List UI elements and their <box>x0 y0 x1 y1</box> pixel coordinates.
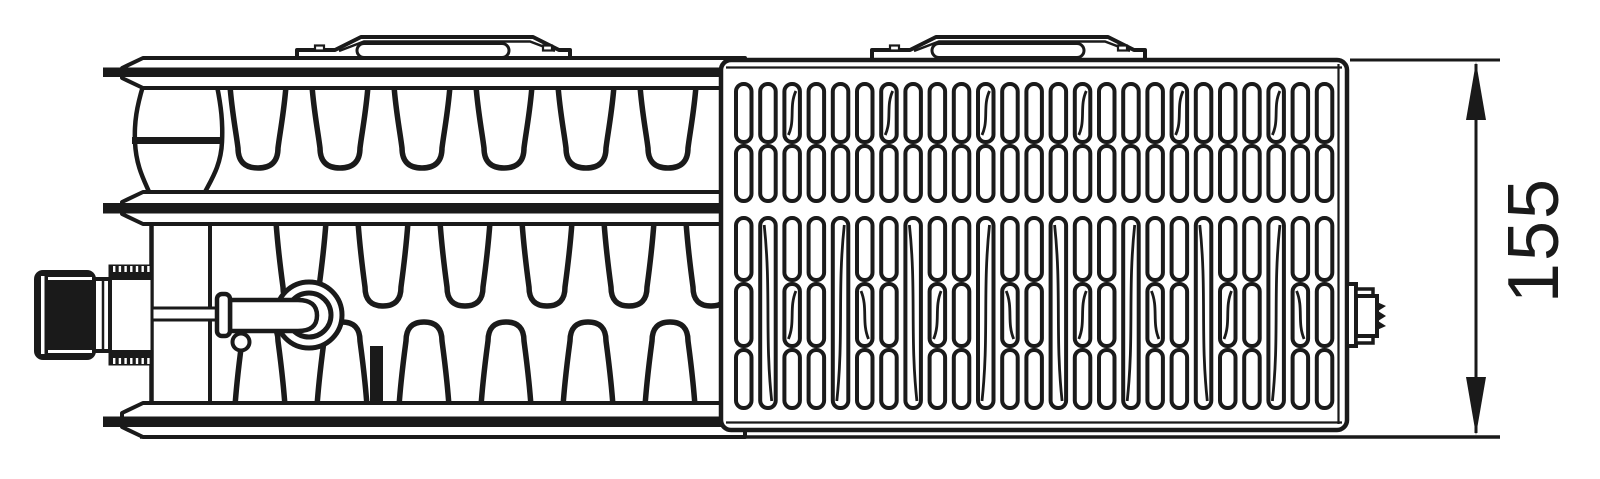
grille-slot <box>736 350 752 408</box>
grille-slot <box>1220 146 1236 201</box>
convector-fin <box>640 86 696 168</box>
grille-slot <box>954 146 970 201</box>
valve-insert-pipe <box>230 300 317 331</box>
grille-slot <box>833 84 849 142</box>
knob-edge-line <box>48 277 92 280</box>
grille-slot <box>736 146 752 201</box>
grille-slot <box>784 146 800 201</box>
grille-slot <box>881 350 897 408</box>
grille-slot <box>1123 84 1139 142</box>
water-channel-rail <box>103 192 745 224</box>
convector-fin <box>394 86 450 168</box>
grille-slot <box>881 284 897 346</box>
grille-slot <box>1244 284 1260 346</box>
vent-hole <box>233 334 250 351</box>
grille-slot <box>954 218 970 280</box>
grille-slot <box>1196 146 1212 201</box>
grille-slot <box>1220 218 1236 280</box>
convector-fin <box>399 322 449 406</box>
valve-flange <box>217 294 230 336</box>
grille-slot <box>881 218 897 280</box>
rail-center-line <box>103 203 745 214</box>
convector-fin <box>481 322 531 406</box>
grille-slot <box>1147 350 1163 408</box>
grille-slot <box>1075 350 1091 408</box>
convector-fin <box>522 222 572 306</box>
grille-slot <box>1293 146 1309 201</box>
thread-tooth <box>124 358 126 364</box>
grille-slot <box>809 350 825 408</box>
plug-body <box>1356 296 1377 336</box>
union-nut-body <box>110 266 152 364</box>
tab-grip <box>357 44 509 58</box>
grille-slot <box>1317 284 1333 346</box>
tab-foot <box>543 46 552 51</box>
knob-edge-line <box>48 350 92 353</box>
grille-slot <box>978 146 994 201</box>
grille-slot <box>1002 218 1018 280</box>
grille-slot <box>1026 284 1042 346</box>
grille-slot <box>905 146 921 201</box>
grille-slot <box>784 350 800 408</box>
knob-highlight <box>41 276 45 354</box>
convector-fin <box>645 322 695 406</box>
grille-slot <box>1026 218 1042 280</box>
grille-slot <box>760 84 776 142</box>
grille-slot <box>1220 84 1236 142</box>
thread-tooth <box>119 266 121 272</box>
grille-slot <box>954 284 970 346</box>
grille-slot <box>1075 218 1091 280</box>
convector-fin <box>558 86 614 168</box>
arrowhead-down <box>1466 377 1486 435</box>
water-channel-rail <box>103 58 745 88</box>
grille-slot <box>809 146 825 201</box>
grille-slot <box>1099 350 1115 408</box>
grille-slot <box>857 350 873 408</box>
grille-slot <box>809 218 825 280</box>
convector-fins-upper-row <box>230 86 696 168</box>
grille-slot <box>857 84 873 142</box>
arrowhead-up <box>1466 62 1486 120</box>
return-plug <box>1347 284 1386 346</box>
grille-slot <box>930 218 946 280</box>
tab-foot <box>1118 46 1127 51</box>
grille-slot <box>1002 350 1018 408</box>
grille-slot <box>736 284 752 346</box>
thread-tooth <box>130 358 132 364</box>
end-channel-joint-line <box>132 137 224 144</box>
grille-slot <box>1147 218 1163 280</box>
top-grille-panel <box>721 60 1347 430</box>
grille-slot <box>1317 218 1333 280</box>
convector-fin <box>358 222 408 306</box>
thread-tooth <box>142 266 144 272</box>
grille-slot <box>809 284 825 346</box>
grille-slot <box>1244 84 1260 142</box>
grille-slot <box>1220 350 1236 408</box>
convector-fin <box>230 86 286 168</box>
thread-tooth <box>113 358 115 364</box>
grille-slot <box>1147 84 1163 142</box>
grille-slot <box>954 84 970 142</box>
grille-slot <box>1123 146 1139 201</box>
grille-slot <box>1317 146 1333 201</box>
grille-slot <box>857 146 873 201</box>
grille-slot <box>1172 218 1188 280</box>
grille-slot <box>954 350 970 408</box>
grille-slot <box>736 218 752 280</box>
grille-slot <box>857 218 873 280</box>
grille-slot <box>736 84 752 142</box>
grille-slot <box>1293 84 1309 142</box>
grille-slot <box>1244 146 1260 201</box>
thread-tooth <box>147 358 149 364</box>
thread-tooth <box>119 358 121 364</box>
mounting-tabs <box>297 37 1145 58</box>
grille-slot <box>1099 146 1115 201</box>
rail-center-line <box>103 417 745 428</box>
grille-slot <box>760 146 776 201</box>
grille-slot <box>881 146 897 201</box>
convector-fin <box>476 86 532 168</box>
grille-slot <box>1172 284 1188 346</box>
thread-tooth <box>113 266 115 272</box>
convector-fin <box>563 322 613 406</box>
thread-tooth <box>130 266 132 272</box>
grille-slot <box>930 146 946 201</box>
weld-seam-bar <box>370 346 383 403</box>
grille-slot <box>905 84 921 142</box>
grille-slot <box>1268 146 1284 201</box>
thread-tooth <box>147 266 149 272</box>
dimension-label: 155 <box>1494 177 1574 303</box>
water-channel-rail <box>103 403 745 437</box>
grille-slot <box>1026 350 1042 408</box>
grille-slot <box>1051 84 1067 142</box>
grille-slot <box>1099 218 1115 280</box>
radiator-top-view-svg: 155 <box>0 0 1600 479</box>
grille-slot <box>1026 146 1042 201</box>
grille-slot <box>1317 350 1333 408</box>
convector-fin <box>312 86 368 168</box>
thread-tooth <box>142 358 144 364</box>
grille-slot <box>930 350 946 408</box>
tab-grip <box>932 44 1084 58</box>
plug-thread-tip <box>1377 302 1386 330</box>
grille-slot <box>1099 284 1115 346</box>
tab-foot <box>890 46 899 51</box>
grille-slot <box>1002 84 1018 142</box>
rail-center-line <box>103 68 745 78</box>
grille-slot <box>784 218 800 280</box>
grille-slot <box>1244 218 1260 280</box>
grille-slot <box>1051 146 1067 201</box>
grille-slot <box>833 146 849 201</box>
valve-spindle-fill <box>150 309 222 320</box>
convector-fin <box>604 222 654 306</box>
grille-slot <box>1293 350 1309 408</box>
thread-tooth <box>124 266 126 272</box>
grille-slot <box>1002 146 1018 201</box>
thread-tooth <box>136 358 138 364</box>
grille-slot <box>1172 350 1188 408</box>
grille-slot <box>1196 84 1212 142</box>
grille-slot <box>1147 146 1163 201</box>
grille-slot <box>930 84 946 142</box>
grille-slot <box>1293 218 1309 280</box>
thread-tooth <box>136 266 138 272</box>
grille-slot <box>1244 350 1260 408</box>
grille-slot <box>1026 84 1042 142</box>
grille-slot <box>1317 84 1333 142</box>
grille-slot <box>1075 146 1091 201</box>
radiator-top-view-drawing: 155 <box>0 0 1600 479</box>
convector-fin <box>440 222 490 306</box>
tab-foot <box>315 46 324 51</box>
grille-slot <box>809 84 825 142</box>
grille-slot <box>1099 84 1115 142</box>
grille-slot <box>1172 146 1188 201</box>
